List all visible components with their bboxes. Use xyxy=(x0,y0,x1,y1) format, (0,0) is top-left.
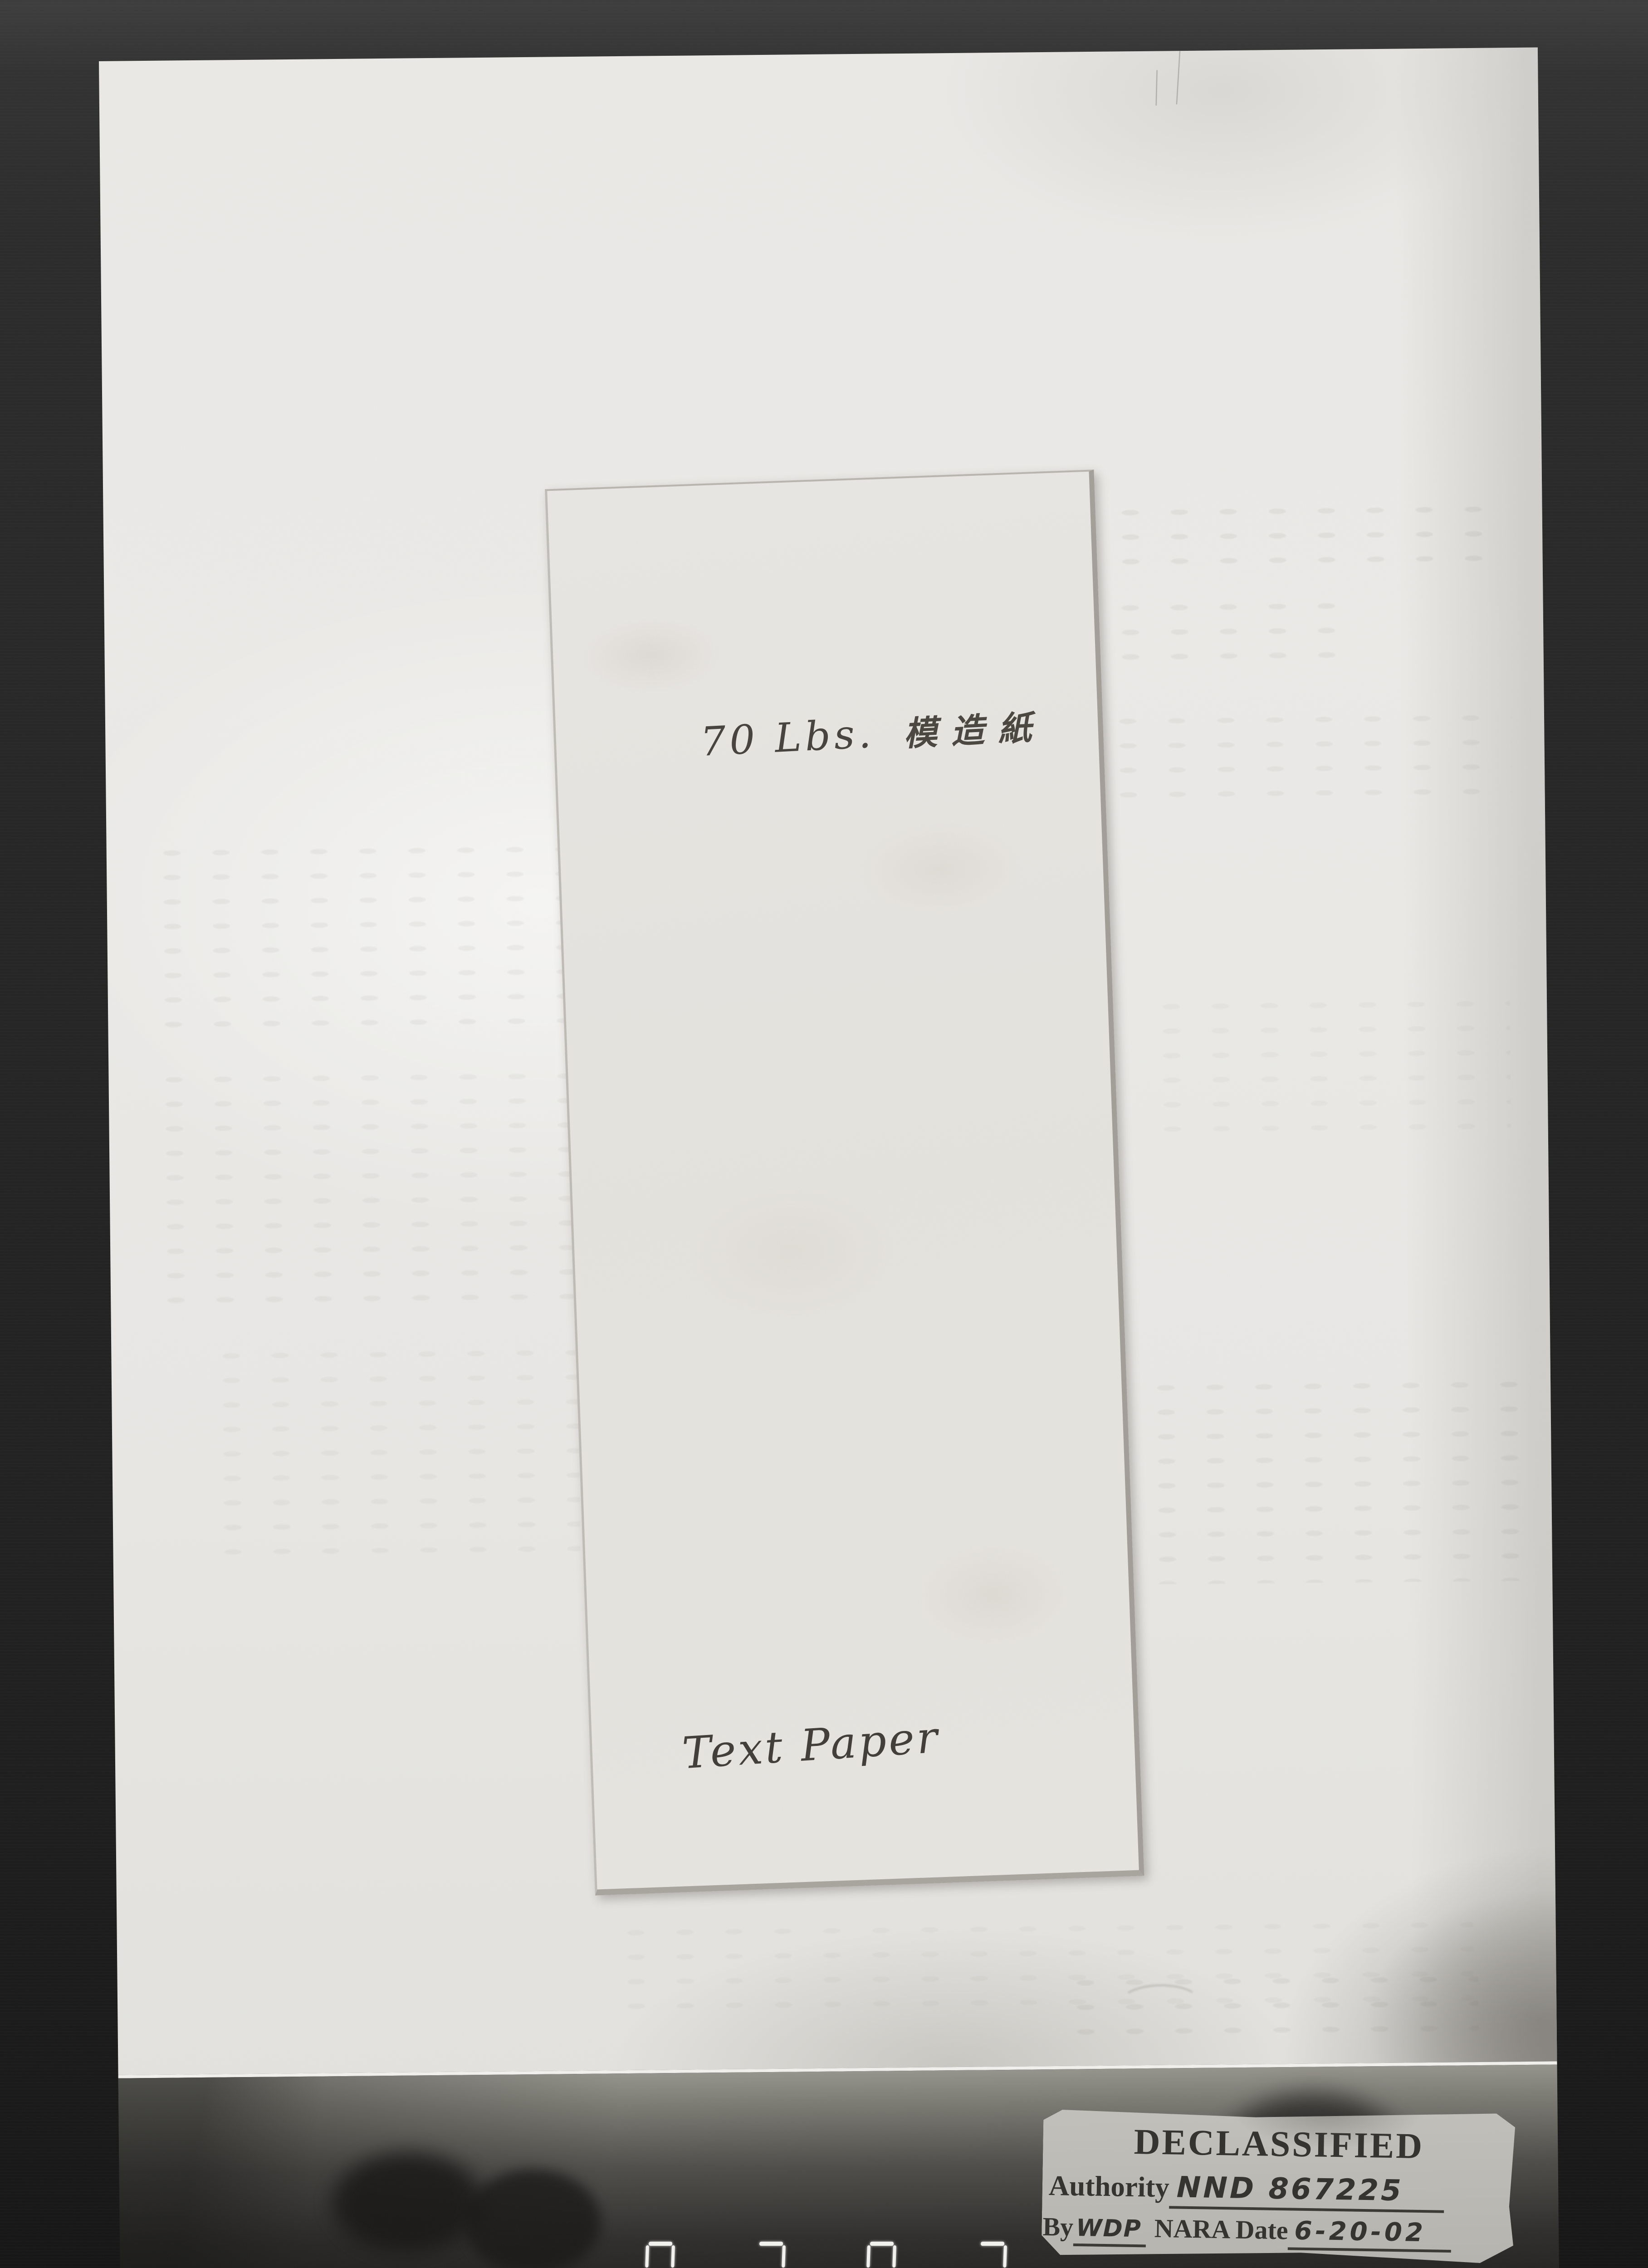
declassified-stamp: DECLASSIFIED Authority NND 867225 By WDP… xyxy=(1041,2107,1515,2263)
handwritten-caption: Text Paper xyxy=(681,1711,941,1779)
photo-print: 70 Lbs.模造紙 Text Paper xyxy=(99,48,1560,2268)
frame-digit xyxy=(976,2242,1007,2268)
kanji-grade-text: 模造紙 xyxy=(903,708,1046,753)
shadow-blob xyxy=(332,2152,483,2253)
stamp-authority-line: Authority NND 867225 xyxy=(1042,2169,1514,2214)
frame-digit xyxy=(755,2242,786,2268)
authority-value: NND 867225 xyxy=(1169,2170,1444,2213)
by-value: WDP xyxy=(1073,2214,1147,2248)
authority-label: Authority xyxy=(1048,2169,1169,2204)
shadow-blob xyxy=(464,2169,601,2268)
weight-text: 70 Lbs. xyxy=(699,710,876,765)
ghost-marks xyxy=(1103,705,1512,809)
handwritten-weight-label: 70 Lbs.模造紙 xyxy=(699,700,1046,766)
ghost-marks xyxy=(206,1340,581,1571)
by-label: By xyxy=(1042,2211,1074,2242)
scanned-archival-page: { "scan": { "frame_digits": ["0", "7", "… xyxy=(0,0,1648,2268)
ghost-marks xyxy=(1141,1372,1524,1584)
paper-sample: 70 Lbs.模造紙 Text Paper xyxy=(545,469,1144,1895)
stamp-by-line: By WDP NARA Date 6-20-02 xyxy=(1042,2211,1514,2253)
ghost-marks xyxy=(147,837,580,1036)
faint-pencil-scribble xyxy=(1120,1984,1201,2021)
photo-emulsion-area: 70 Lbs.模造紙 Text Paper xyxy=(99,48,1557,2078)
ghost-marks xyxy=(1147,991,1511,1140)
stamp-title: DECLASSIFIED xyxy=(1043,2120,1515,2169)
nara-date-value: 6-20-02 xyxy=(1288,2216,1452,2253)
frame-digit xyxy=(866,2242,896,2268)
film-scratch xyxy=(1176,51,1180,104)
ghost-marks xyxy=(149,1064,596,1313)
frame-digit xyxy=(644,2242,675,2268)
corner-shadow xyxy=(1274,1843,1557,2064)
film-scratch xyxy=(1156,70,1158,106)
frame-counter xyxy=(644,2242,1007,2268)
ghost-marks xyxy=(1105,497,1505,568)
nara-date-label: NARA Date xyxy=(1154,2213,1288,2246)
